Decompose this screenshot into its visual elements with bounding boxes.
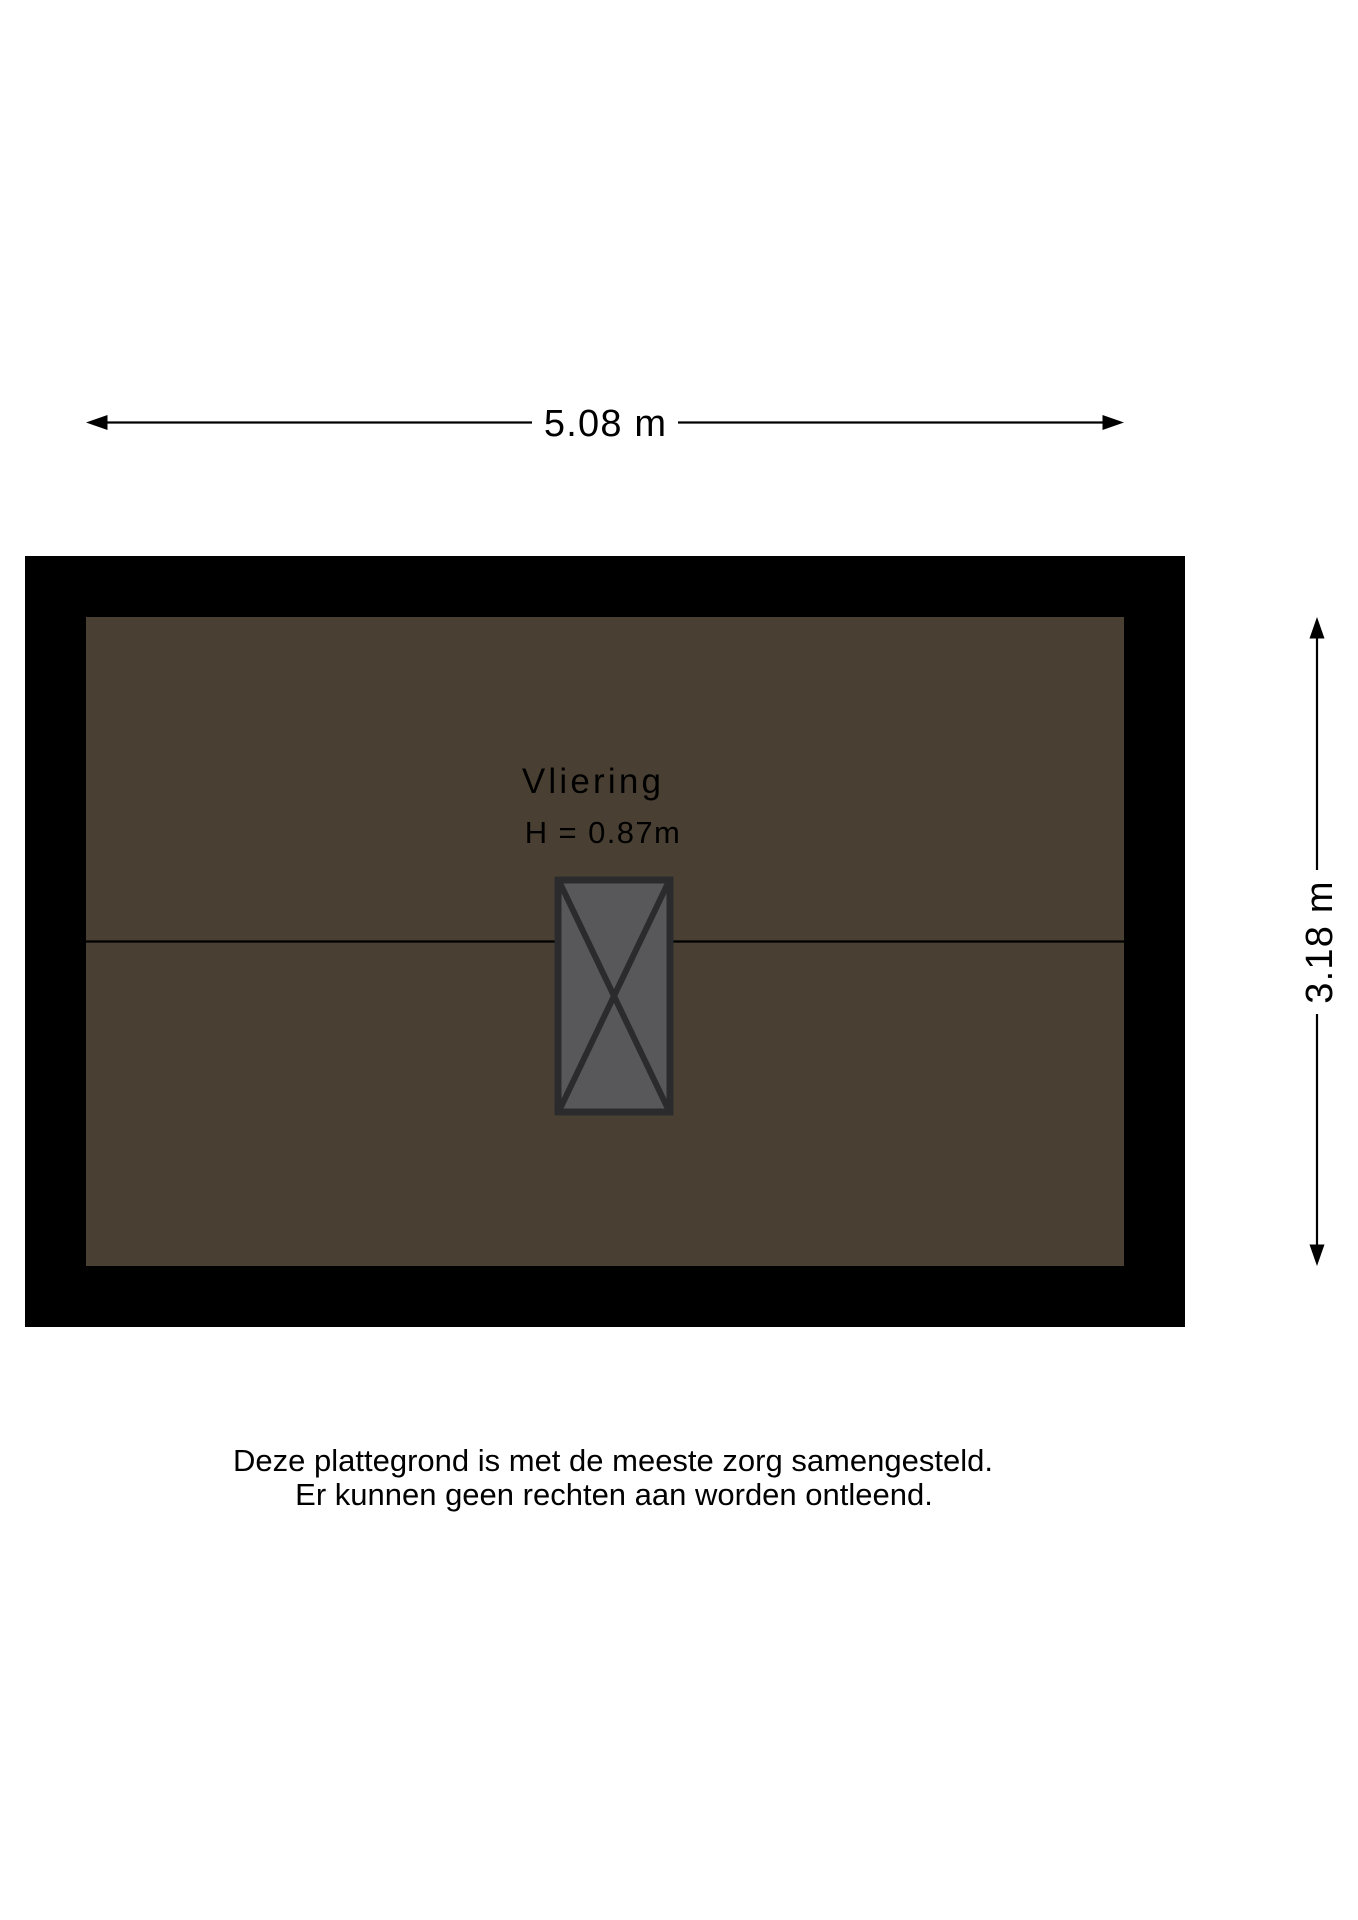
svg-text:H = 0.87m: H = 0.87m (525, 815, 681, 850)
svg-text:5.08 m: 5.08 m (544, 403, 667, 445)
svg-text:Er kunnen geen rechten aan wor: Er kunnen geen rechten aan worden ontlee… (295, 1477, 933, 1512)
svg-text:3.18 m: 3.18 m (1299, 880, 1341, 1003)
svg-text:Vliering: Vliering (522, 762, 664, 801)
svg-text:Deze plattegrond is met de mee: Deze plattegrond is met de meeste zorg s… (233, 1443, 993, 1478)
